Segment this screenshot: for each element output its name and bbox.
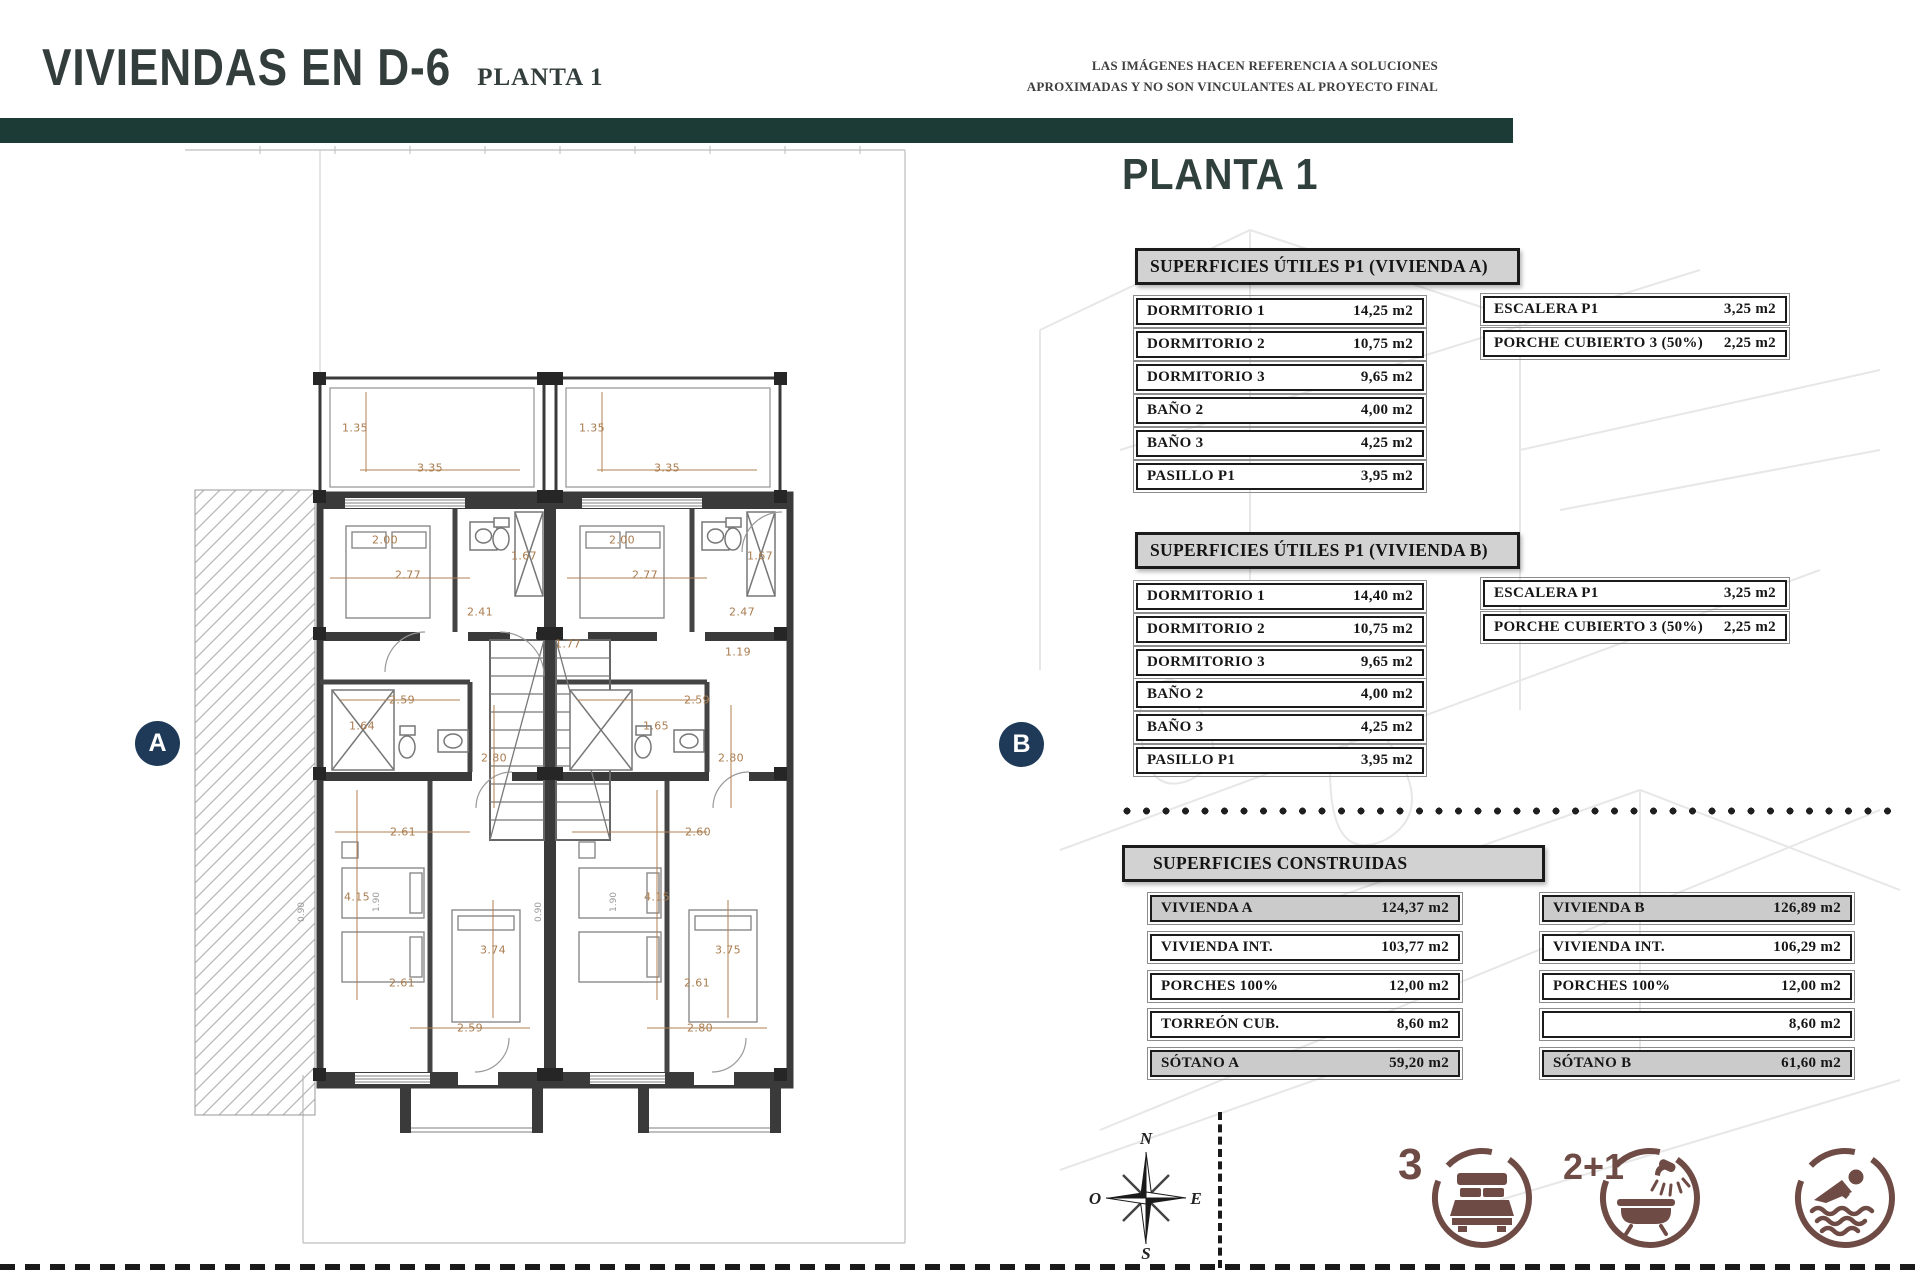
dim-label: 2.61 [684, 977, 710, 990]
dim-label: 3.35 [654, 462, 680, 475]
dim-label: 1.77 [555, 638, 581, 651]
table-row: DORMITORIO 114,40 m2 [1136, 583, 1424, 610]
dim-label: 2.80 [481, 752, 507, 765]
dotted-separator [1122, 806, 1894, 816]
dim-label: 2.41 [467, 606, 493, 619]
disclaimer: LAS IMÁGENES HACEN REFERENCIA A SOLUCION… [958, 56, 1438, 98]
table-row: PASILLO P13,95 m2 [1136, 463, 1424, 490]
dim-label: 1.64 [349, 720, 375, 733]
dim-label: 1.65 [643, 720, 669, 733]
dim-label: 1.35 [579, 422, 605, 435]
table-row: BAÑO 24,00 m2 [1136, 397, 1424, 424]
table-row: BAÑO 34,25 m2 [1136, 714, 1424, 741]
page-header: VIVIENDAS EN D-6 PLANTA 1 [42, 38, 604, 98]
dim-label: 1.19 [725, 646, 751, 659]
dim-label: 2.00 [372, 534, 398, 547]
dim-label-small: 0.90 [297, 902, 307, 922]
table-utiles-a-header: SUPERFICIES ÚTILES P1 (VIVIENDA A) [1135, 248, 1520, 285]
dim-label: 2.59 [389, 694, 415, 707]
floor-plan-drawing [170, 140, 930, 1250]
table-row: PORCHE CUBIERTO 3 (50%)2,25 m2 [1483, 330, 1787, 357]
party-wall [544, 495, 556, 1085]
panel-heading: PLANTA 1 [1122, 150, 1318, 200]
terraces [320, 378, 780, 497]
porches [400, 1085, 781, 1133]
dim-label: 2.59 [684, 694, 710, 707]
bathroom-count: 2+1 [1563, 1146, 1624, 1188]
table-row: PASILLO P13,95 m2 [1136, 747, 1424, 774]
dim-label: 4.15 [344, 891, 370, 904]
table-row: BAÑO 34,25 m2 [1136, 430, 1424, 457]
table-row: DORMITORIO 39,65 m2 [1136, 364, 1424, 391]
table-row: VIVIENDA A124,37 m2 [1150, 895, 1460, 922]
table-row: TORREÓN CUB.8,60 m2 [1150, 1011, 1460, 1038]
svg-text:O: O [1089, 1189, 1101, 1208]
disclaimer-line-2: APROXIMADAS Y NO SON VINCULANTES AL PROY… [958, 77, 1438, 98]
table-row: VIVIENDA INT.106,29 m2 [1542, 934, 1852, 961]
table-row: DORMITORIO 114,25 m2 [1136, 298, 1424, 325]
dim-label: 2.77 [632, 569, 658, 582]
dim-label: 2.61 [389, 977, 415, 990]
dim-label-small: 1.90 [609, 892, 619, 912]
swimming-pool-icon [1790, 1143, 1900, 1253]
dim-label: 4.15 [644, 891, 670, 904]
table-row: PORCHE CUBIERTO 3 (50%)2,25 m2 [1483, 614, 1787, 641]
table-row: PORCHES 100%12,00 m2 [1542, 973, 1852, 1000]
dim-label: 2.47 [729, 606, 755, 619]
table-row: SÓTANO A59,20 m2 [1150, 1050, 1460, 1077]
dim-label: 2.60 [685, 826, 711, 839]
table-row: BAÑO 24,00 m2 [1136, 681, 1424, 708]
dim-label: 2.00 [609, 534, 635, 547]
dim-label: 1.35 [342, 422, 368, 435]
dim-label: 1.67 [511, 550, 537, 563]
table-row: DORMITORIO 39,65 m2 [1136, 649, 1424, 676]
table-row: DORMITORIO 210,75 m2 [1136, 616, 1424, 643]
table-row: ESCALERA P13,25 m2 [1483, 580, 1787, 607]
table-row: PORCHES 100%12,00 m2 [1150, 973, 1460, 1000]
unit-b-marker: B [999, 722, 1044, 767]
page-subtitle: PLANTA 1 [477, 64, 603, 92]
compass-rose-icon: N E S O [1086, 1128, 1206, 1260]
page-title: VIVIENDAS EN D-6 [42, 38, 451, 98]
table-row: ESCALERA P13,25 m2 [1483, 296, 1787, 323]
hatched-strip [195, 490, 315, 1115]
dim-label: 3.74 [480, 944, 506, 957]
dim-label: 3.75 [715, 944, 741, 957]
table-row: DORMITORIO 210,75 m2 [1136, 331, 1424, 358]
dim-label-small: 1.90 [372, 892, 382, 912]
dim-label-small: 0.90 [534, 902, 544, 922]
bottom-dashed-line [0, 1264, 1920, 1270]
dim-label: 1.67 [747, 550, 773, 563]
dim-label: 2.61 [390, 826, 416, 839]
disclaimer-line-1: LAS IMÁGENES HACEN REFERENCIA A SOLUCION… [958, 56, 1438, 77]
dim-label: 2.80 [687, 1022, 713, 1035]
bed-icon [1427, 1143, 1537, 1253]
table-row: 8,60 m2 [1542, 1011, 1852, 1038]
dim-label: 3.35 [417, 462, 443, 475]
dim-label: 2.77 [395, 569, 421, 582]
svg-text:N: N [1139, 1129, 1153, 1148]
table-row: SÓTANO B61,60 m2 [1542, 1050, 1852, 1077]
unit-a-marker: A [135, 721, 180, 766]
vertical-dashed-divider [1218, 1112, 1222, 1268]
svg-text:S: S [1141, 1244, 1150, 1260]
table-utiles-b-header: SUPERFICIES ÚTILES P1 (VIVIENDA B) [1135, 532, 1520, 569]
table-construidas-header: SUPERFICIES CONSTRUIDAS [1122, 845, 1545, 882]
table-row: VIVIENDA INT.103,77 m2 [1150, 934, 1460, 961]
dim-label: 2.59 [457, 1022, 483, 1035]
svg-text:E: E [1189, 1189, 1201, 1208]
table-row: VIVIENDA B126,89 m2 [1542, 895, 1852, 922]
dim-label: 2.80 [718, 752, 744, 765]
bedroom-count: 3 [1398, 1140, 1422, 1190]
